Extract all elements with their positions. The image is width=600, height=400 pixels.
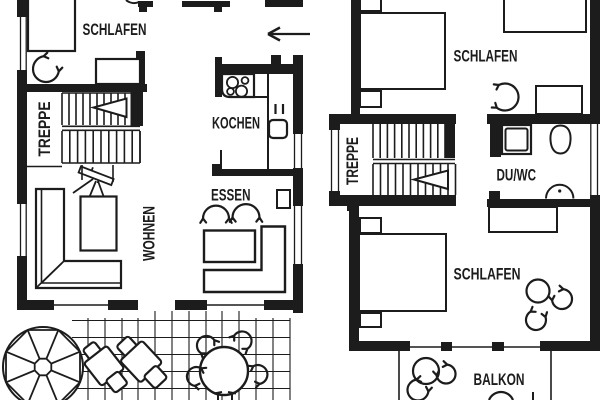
svg-text:BALKON: BALKON (474, 370, 525, 389)
svg-text:WOHNEN: WOHNEN (140, 206, 159, 261)
svg-text:TREPPE: TREPPE (343, 137, 362, 185)
svg-text:DU/WC: DU/WC (497, 166, 537, 185)
svg-text:SCHLAFEN: SCHLAFEN (454, 265, 521, 284)
svg-text:KOCHEN: KOCHEN (212, 114, 260, 133)
svg-text:SCHLAFEN: SCHLAFEN (454, 47, 518, 66)
svg-text:TREPPE: TREPPE (35, 102, 54, 157)
svg-text:ESSEN: ESSEN (211, 186, 251, 205)
svg-text:SCHLAFEN: SCHLAFEN (83, 20, 147, 39)
